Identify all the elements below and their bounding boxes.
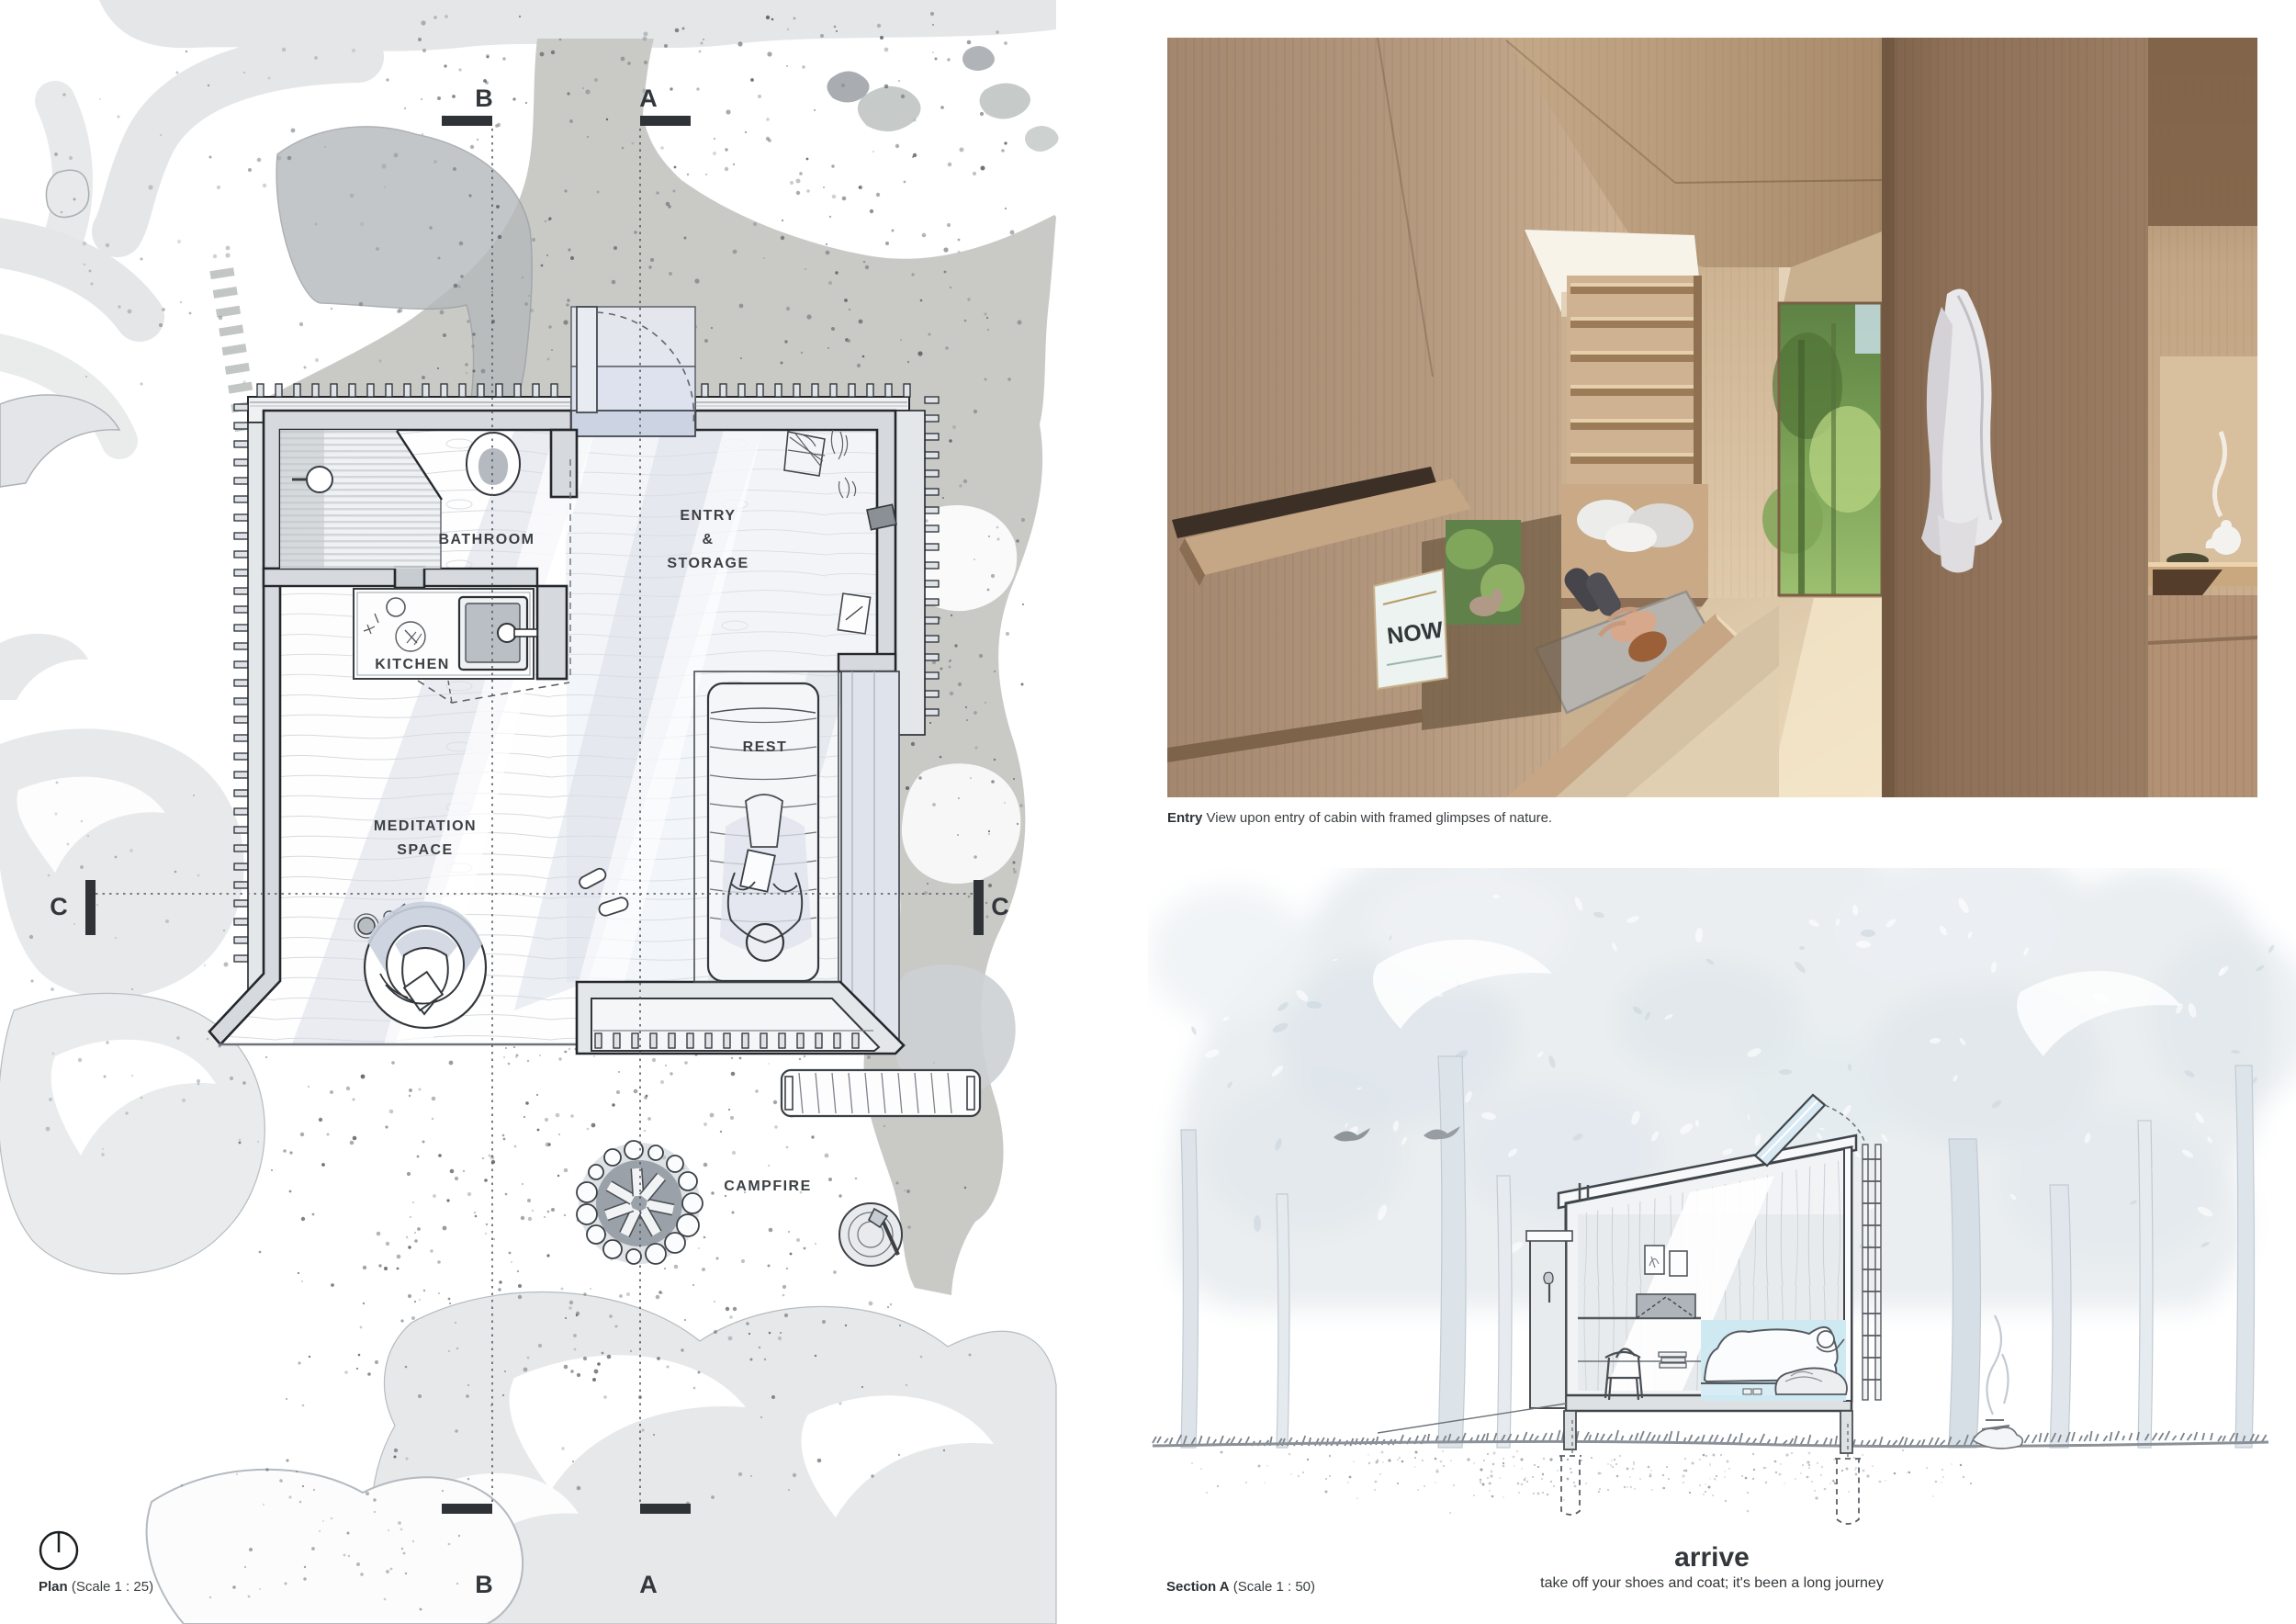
svg-text:arrive: arrive [1674,1542,1750,1573]
svg-text:Plan (Scale 1 : 25): Plan (Scale 1 : 25) [39,1579,153,1595]
svg-text:ENTRY: ENTRY [680,508,736,524]
svg-text:A: A [639,85,658,112]
svg-text:REST: REST [743,739,788,755]
svg-text:BATHROOM: BATHROOM [438,532,535,547]
svg-text:B: B [475,1571,493,1598]
svg-text:STORAGE: STORAGE [667,556,748,571]
svg-text:SPACE: SPACE [397,842,453,858]
svg-text:take off your shoes and coat;: take off your shoes and coat; it's been … [1540,1575,1884,1591]
svg-text:C: C [991,893,1009,920]
svg-text:KITCHEN: KITCHEN [375,657,450,672]
svg-text:&: & [702,532,714,547]
svg-text:A: A [639,1571,658,1598]
svg-text:C: C [50,893,68,920]
svg-text:Entry View upon entry of cabin: Entry View upon entry of cabin with fram… [1167,810,1552,826]
svg-text:CAMPFIRE: CAMPFIRE [724,1179,812,1194]
svg-text:B: B [475,85,493,112]
svg-text:MEDITATION: MEDITATION [374,818,477,834]
svg-text:Section A (Scale 1 : 50): Section A (Scale 1 : 50) [1166,1579,1315,1595]
